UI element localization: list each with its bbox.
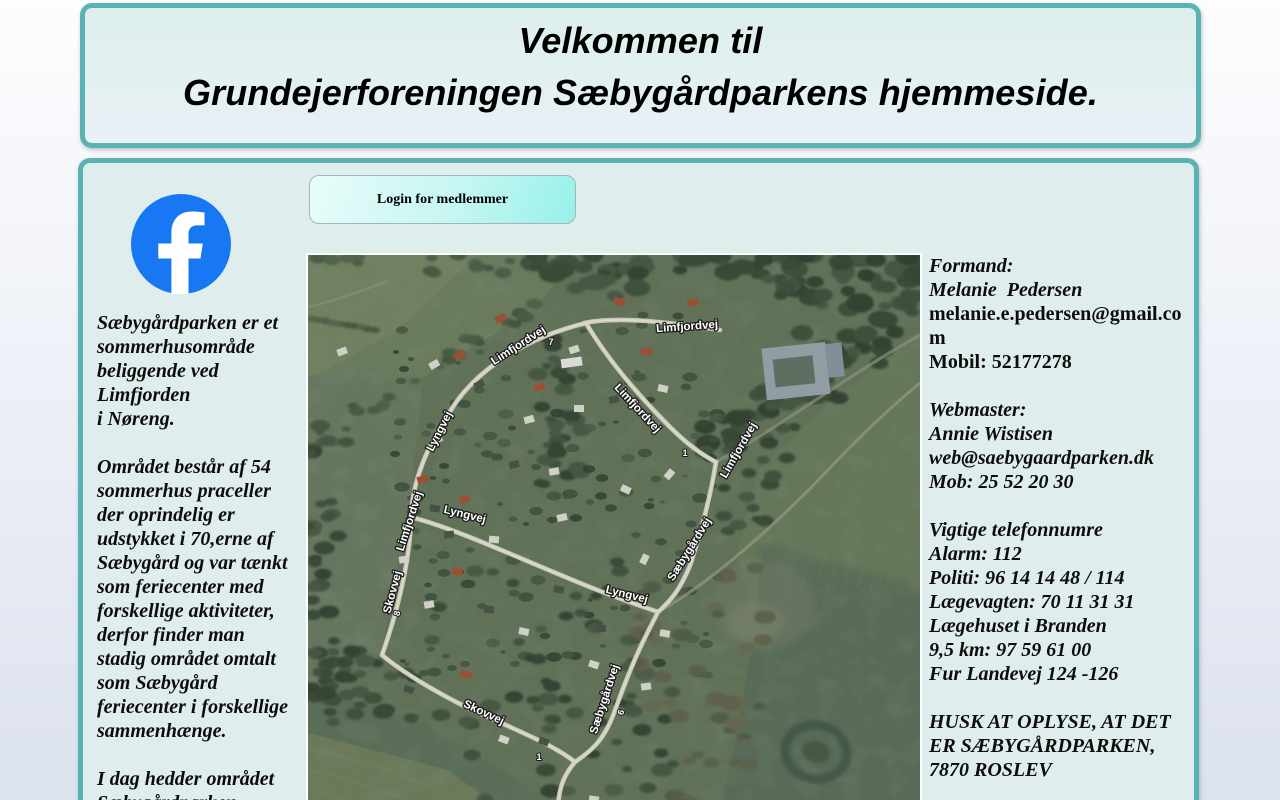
svg-text:1: 1 (682, 448, 687, 458)
svg-text:1: 1 (536, 752, 541, 762)
svg-text:7: 7 (548, 337, 553, 347)
